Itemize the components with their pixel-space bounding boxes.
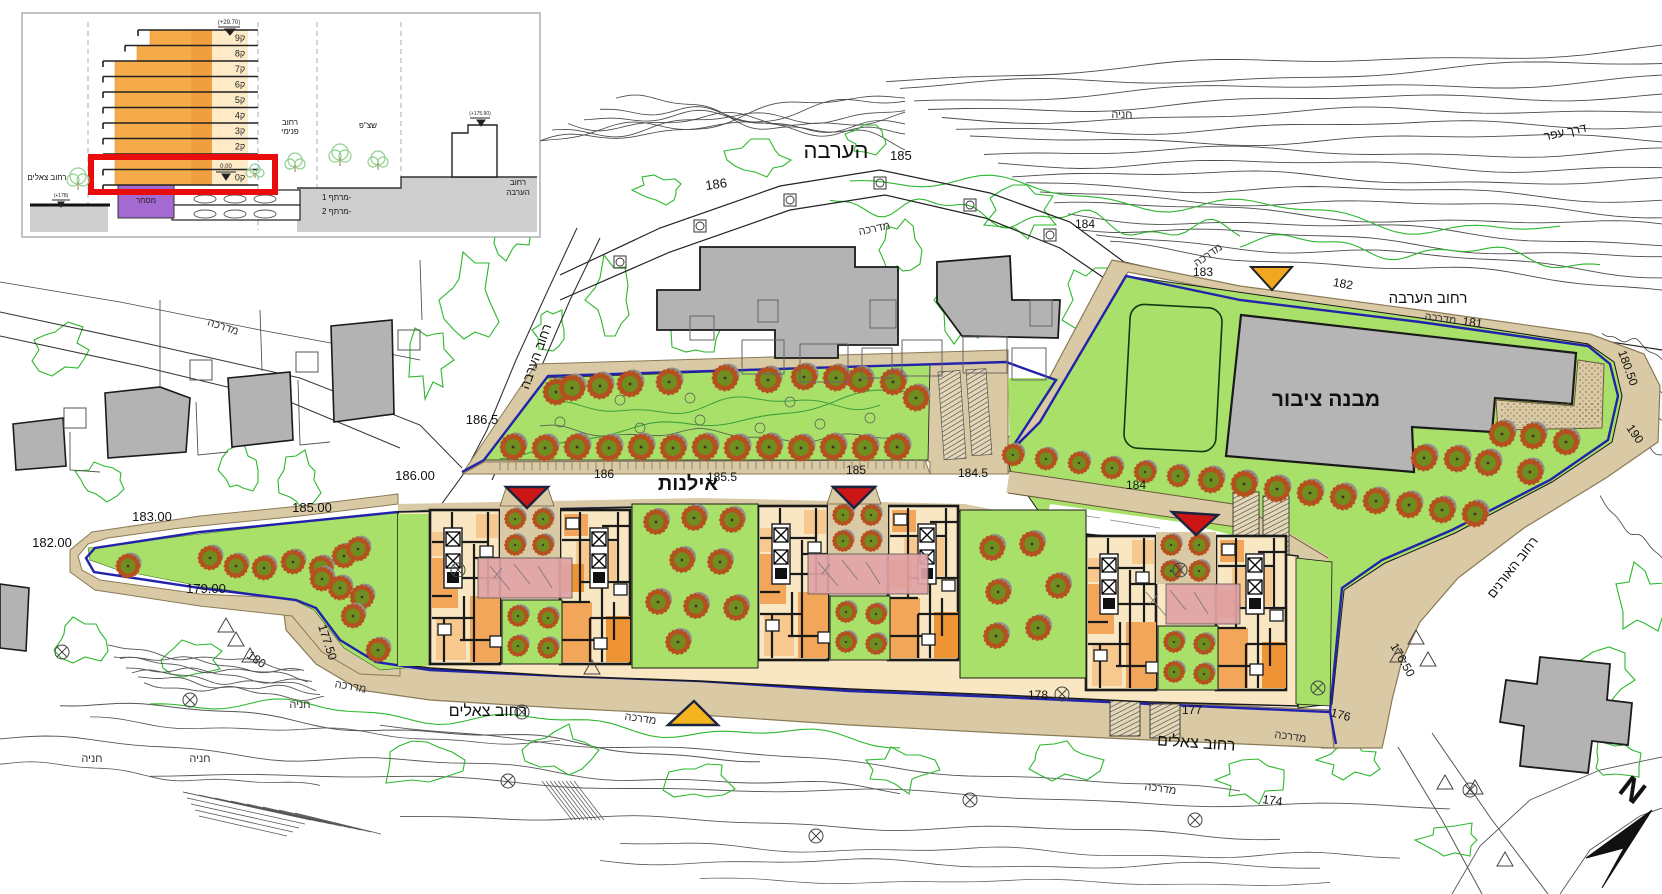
svg-text:4ק: 4ק [235, 111, 245, 121]
svg-text:186.00: 186.00 [395, 468, 435, 483]
svg-text:מבנה ציבור: מבנה ציבור [1272, 388, 1380, 411]
svg-text:2ק: 2ק [235, 142, 245, 152]
svg-text:184.5: 184.5 [958, 466, 988, 480]
svg-text:(+178): (+178) [54, 193, 69, 199]
svg-text:184: 184 [1075, 217, 1095, 231]
svg-text:182.00: 182.00 [32, 535, 72, 550]
svg-text:5ק: 5ק [235, 95, 245, 105]
svg-text:7ק: 7ק [235, 64, 245, 74]
svg-text:181: 181 [1462, 314, 1484, 331]
svg-text:חניה: חניה [189, 753, 210, 765]
svg-text:פנימי: פנימי [281, 127, 299, 136]
svg-text:הערבה: הערבה [804, 138, 869, 163]
svg-text:הערבה: הערבה [506, 188, 530, 197]
svg-text:186.5: 186.5 [466, 412, 499, 427]
svg-text:(+175.90): (+175.90) [469, 111, 491, 117]
svg-text:חניה: חניה [81, 753, 102, 765]
svg-text:185: 185 [846, 463, 866, 477]
svg-text:מרתף 2-: מרתף 2- [322, 207, 352, 216]
svg-text:186: 186 [704, 175, 728, 193]
svg-text:177: 177 [1182, 703, 1202, 717]
svg-text:שצ"פ: שצ"פ [359, 121, 377, 130]
svg-text:178: 178 [1028, 688, 1048, 702]
svg-text:חניה: חניה [1111, 109, 1132, 121]
svg-text:0.00: 0.00 [220, 164, 232, 170]
svg-text:מסחר: מסחר [136, 196, 156, 205]
svg-text:9ק: 9ק [235, 33, 245, 43]
svg-text:רחוב צאלים: רחוב צאלים [27, 173, 66, 182]
svg-text:מרתף 1-: מרתף 1- [322, 193, 352, 202]
svg-text:חניה: חניה [289, 699, 310, 711]
svg-text:186: 186 [594, 467, 614, 481]
svg-text:רחוב הערבה: רחוב הערבה [1389, 290, 1468, 307]
svg-text:185.00: 185.00 [292, 500, 332, 515]
svg-text:רחוב: רחוב [282, 118, 298, 127]
svg-text:3ק: 3ק [235, 126, 245, 136]
svg-text:6ק: 6ק [235, 80, 245, 90]
svg-text:184: 184 [1126, 478, 1146, 492]
svg-text:183.00: 183.00 [132, 509, 172, 524]
svg-text:רחוב: רחוב [510, 178, 526, 187]
svg-text:185: 185 [890, 148, 912, 163]
svg-text:(+29.70): (+29.70) [218, 20, 241, 26]
svg-text:174: 174 [1262, 792, 1284, 809]
svg-text:179.00: 179.00 [186, 581, 226, 596]
svg-text:8ק: 8ק [235, 49, 245, 59]
svg-text:0ק: 0ק [235, 173, 245, 183]
svg-text:185.5: 185.5 [707, 470, 737, 484]
